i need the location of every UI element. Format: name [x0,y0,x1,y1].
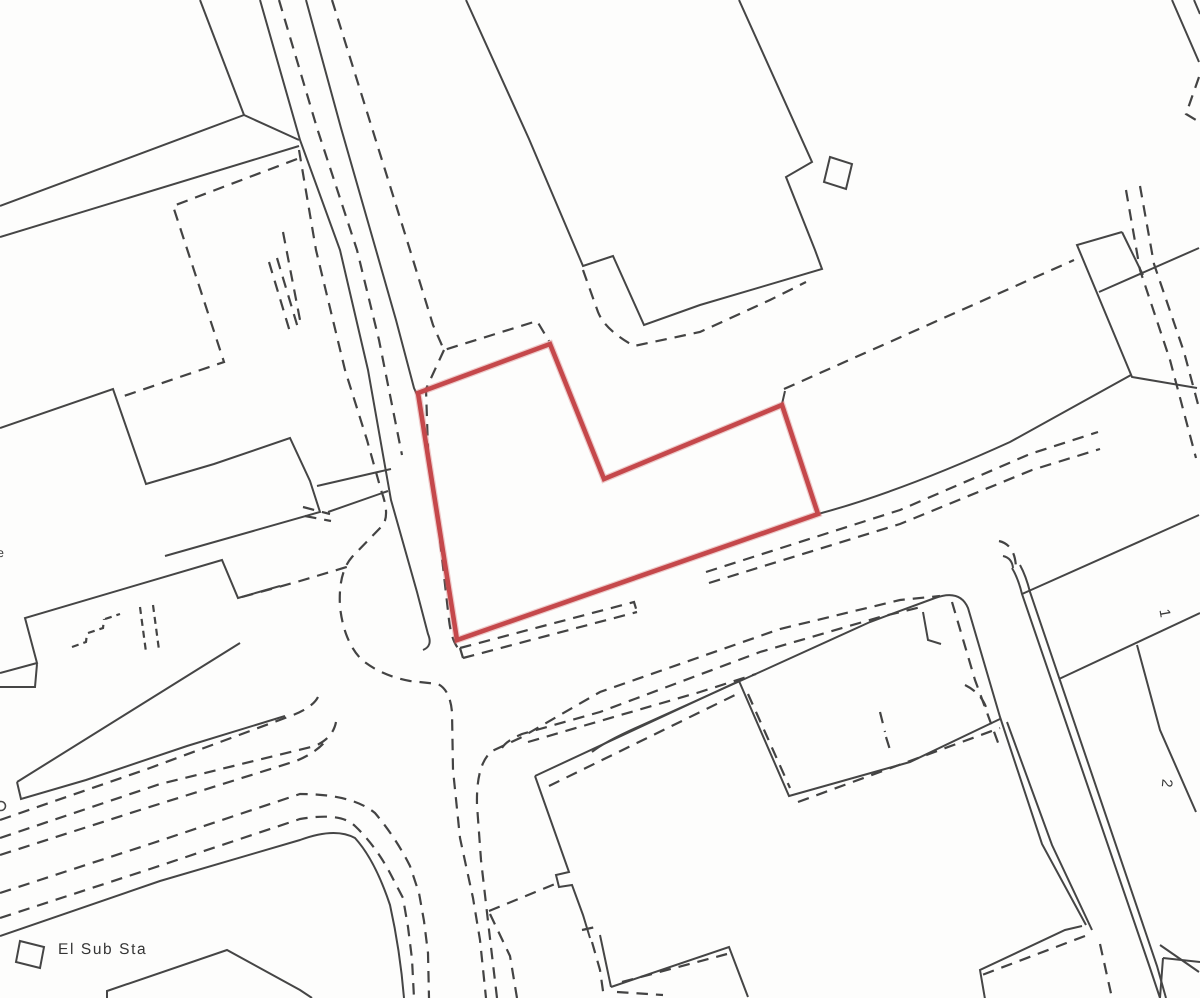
svg-text:2: 2 [1158,778,1176,788]
svg-text:e: e [0,546,4,560]
svg-text:El Sub Sta: El Sub Sta [58,941,147,958]
